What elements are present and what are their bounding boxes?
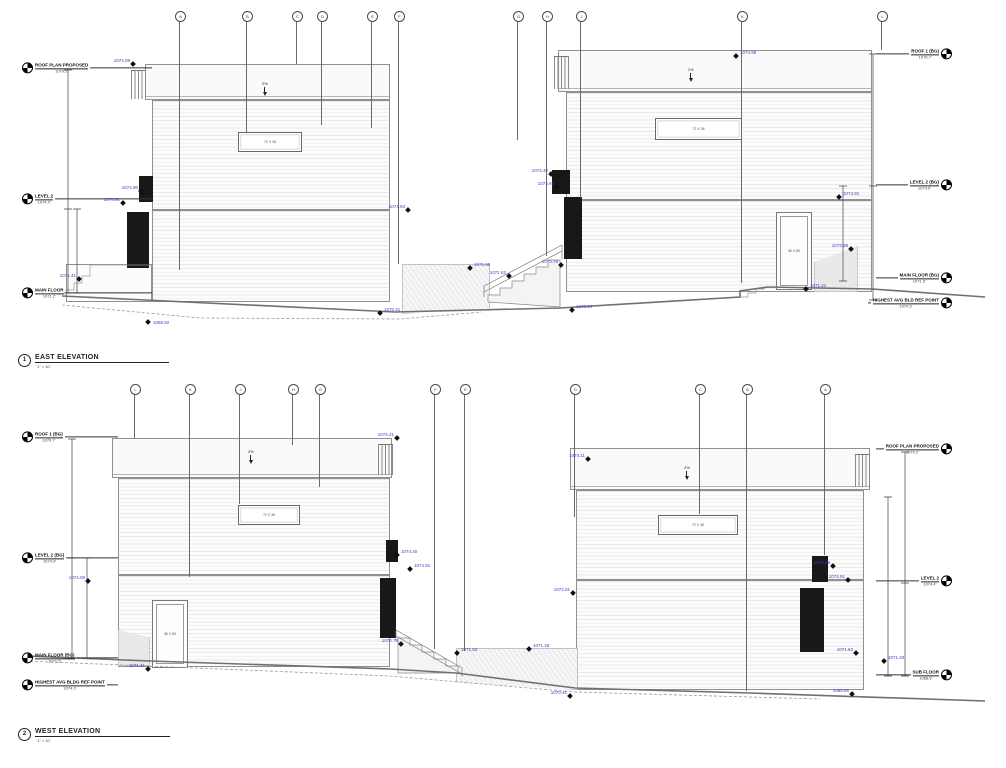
level-elevation: 1079.7' bbox=[42, 438, 55, 443]
spot-marker-icon bbox=[569, 307, 575, 313]
level-name: LEVEL 2 (BG) bbox=[35, 552, 64, 559]
spot-elevation-value: 1074.93 bbox=[389, 204, 405, 209]
spot-elevation-value: 1074.01 bbox=[554, 587, 570, 592]
west-right-roof-railing bbox=[855, 454, 870, 487]
grid-bubble-letter: D bbox=[317, 11, 328, 22]
grid-bubble-letter: A bbox=[820, 384, 831, 395]
east-left-roof-railing bbox=[131, 70, 146, 99]
level-marker: LEVEL 21074.4' bbox=[876, 575, 952, 586]
spot-marker-icon bbox=[394, 435, 400, 441]
view-number-bubble: 1 bbox=[18, 354, 31, 367]
grid-bubble-letter: B bbox=[242, 11, 253, 22]
level-elevation: 1071.5' bbox=[48, 659, 61, 664]
level-elevation: 1074.9' bbox=[918, 186, 931, 191]
level-marker: ROOF 1 (BG)1079.7' bbox=[22, 431, 118, 442]
spot-marker-icon bbox=[407, 566, 413, 572]
spot-marker-icon bbox=[881, 658, 887, 664]
grid-bubble-letter: G bbox=[315, 384, 326, 395]
spot-elevation-value: 1070.14 bbox=[576, 304, 592, 309]
east-left-dark-window-upper bbox=[139, 176, 153, 202]
spot-marker-icon bbox=[558, 262, 564, 268]
level-elevation: 1071.2' bbox=[43, 294, 56, 299]
level-line bbox=[876, 277, 898, 278]
level-marker: HIGHEST AVG BLD REF POINT1074.3' bbox=[876, 297, 952, 308]
level-elevation: 1074.3' bbox=[63, 686, 76, 691]
spot-marker-icon bbox=[85, 578, 91, 584]
level-name: ROOF PLAN PROPOSED bbox=[35, 62, 88, 69]
grid-bubble-letter: H bbox=[288, 384, 299, 395]
level-marker: SUB FLOOR1068.9' bbox=[876, 669, 952, 680]
level-name: ROOF PLAN PROPOSED bbox=[886, 443, 939, 450]
level-name: ROOF 1 (BG) bbox=[35, 431, 63, 438]
grid-line bbox=[464, 393, 465, 651]
level-name: LEVEL 2 bbox=[921, 575, 939, 582]
level-datum-icon bbox=[22, 431, 33, 442]
view-title: WEST ELEVATION bbox=[35, 728, 170, 737]
level-marker: HIGHEST AVG BLDG REF POINT1074.3' bbox=[22, 679, 118, 690]
level-line bbox=[65, 436, 118, 437]
east-right-dark-window-upper bbox=[552, 170, 570, 194]
level-elevation: 1074.4' bbox=[923, 582, 936, 587]
west-entry-door: 36 X 80 bbox=[152, 600, 188, 668]
spot-elevation-value: 1074.91 bbox=[414, 563, 430, 568]
fascia-line bbox=[559, 88, 871, 89]
east-right-building-parapet bbox=[558, 50, 872, 92]
east-right-roof-railing bbox=[554, 56, 569, 89]
grid-bubble-letter: B bbox=[742, 384, 753, 395]
grid-line bbox=[398, 20, 399, 264]
level-marker: LEVEL 21074.4' bbox=[22, 193, 152, 204]
level-marker: LEVEL 2 (BG)1074.9' bbox=[876, 179, 952, 190]
level-name: HIGHEST AVG BLDG REF POINT bbox=[35, 679, 105, 686]
level-elevation: 1068.9' bbox=[919, 676, 932, 681]
elevation-drawing-sheet: 36 X 80 36 X 80 bbox=[0, 0, 1006, 768]
east-elevation-title: 1 EAST ELEVATION 1" = 10' bbox=[18, 354, 169, 369]
west-right-building-parapet bbox=[570, 448, 870, 490]
level-line bbox=[876, 53, 909, 54]
level-elevation: 1079.7' bbox=[919, 55, 932, 60]
level-elevation: 1079.2' bbox=[906, 450, 919, 455]
level-marker: LEVEL 2 (BG)1074.9' bbox=[22, 552, 118, 563]
level-name: HIGHEST AVG BLD REF POINT bbox=[873, 297, 939, 304]
level-datum-icon bbox=[941, 48, 952, 59]
grid-bubble-letter: C bbox=[695, 384, 706, 395]
level-line bbox=[876, 674, 911, 675]
level-datum-icon bbox=[941, 179, 952, 190]
view-title: EAST ELEVATION bbox=[35, 354, 169, 363]
grid-bubble-letter: H bbox=[542, 11, 553, 22]
level-name: LEVEL 2 (BG) bbox=[910, 179, 939, 186]
fascia-line bbox=[571, 486, 869, 487]
east-left-building-parapet bbox=[145, 64, 390, 100]
west-elevation-title: 2 WEST ELEVATION 1" = 10' bbox=[18, 728, 170, 743]
grid-bubble-letter: J bbox=[235, 384, 246, 395]
spot-elevation-value: 1071.28 bbox=[533, 643, 549, 648]
west-left-building-parapet bbox=[112, 438, 392, 478]
grid-bubble-letter: D bbox=[570, 384, 581, 395]
spot-marker-icon bbox=[506, 273, 512, 279]
level-name: MAIN FLOOR (BG) bbox=[35, 652, 75, 659]
level-marker: MAIN FLOOR (BG)1071.5' bbox=[876, 272, 952, 283]
spot-elevation-value: 1074.41 bbox=[378, 432, 394, 437]
grid-bubble-letter: L bbox=[130, 384, 141, 395]
spot-marker-icon bbox=[377, 310, 383, 316]
level-line bbox=[66, 557, 118, 558]
grid-bubble-letter: G bbox=[513, 11, 524, 22]
east-left-building-lower-floor bbox=[152, 210, 390, 302]
west-left-roof-railing bbox=[378, 444, 393, 475]
level-datum-icon bbox=[22, 287, 33, 298]
east-retaining-wall bbox=[402, 264, 490, 314]
level-datum-icon bbox=[941, 443, 952, 454]
level-elevation: 1071.5' bbox=[913, 279, 926, 284]
spot-elevation-value: 1074.40 bbox=[532, 168, 548, 173]
spot-marker-icon bbox=[398, 641, 404, 647]
grid-line bbox=[517, 20, 518, 140]
spot-marker-icon bbox=[570, 590, 576, 596]
view-scale: 1" = 10' bbox=[37, 738, 170, 743]
level-name: ROOF 1 (BG) bbox=[911, 48, 939, 55]
spot-elevation-value: 1074.08 bbox=[114, 58, 130, 63]
spot-marker-icon bbox=[405, 207, 411, 213]
level-datum-icon bbox=[941, 297, 952, 308]
level-datum-icon bbox=[941, 575, 952, 586]
grid-bubble-letter: F bbox=[430, 384, 441, 395]
spot-elevation-value: 1070.41 bbox=[384, 307, 400, 312]
level-datum-icon bbox=[941, 272, 952, 283]
door-size-label: 36 X 80 bbox=[164, 632, 176, 636]
spot-elevation-value: 1074.90 bbox=[122, 185, 138, 190]
west-left-dark-window-upper bbox=[386, 540, 398, 562]
level-line bbox=[77, 657, 119, 658]
spot-elevation-value: 1071.63 bbox=[490, 270, 506, 275]
west-right-dark-window-lower bbox=[800, 588, 824, 652]
view-scale: 1" = 10' bbox=[37, 364, 169, 369]
level-line bbox=[107, 684, 118, 685]
grid-line bbox=[296, 20, 297, 64]
level-line bbox=[55, 198, 152, 199]
spot-marker-icon bbox=[120, 200, 126, 206]
west-left-dark-window-lower bbox=[380, 578, 396, 638]
spot-marker-icon bbox=[145, 319, 151, 325]
level-datum-icon bbox=[941, 669, 952, 680]
east-right-dark-window-lower bbox=[564, 197, 582, 259]
level-marker: ROOF PLAN PROPOSED1079.2' bbox=[876, 443, 952, 454]
fascia-line bbox=[113, 474, 391, 475]
spot-elevation-value: 1073.79 bbox=[542, 259, 558, 264]
level-elevation: 1079.2' bbox=[55, 69, 68, 74]
level-datum-icon bbox=[22, 652, 33, 663]
level-elevation: 1074.4' bbox=[38, 200, 51, 205]
view-number-bubble: 2 bbox=[18, 728, 31, 741]
level-marker: MAIN FLOOR (BG)1071.5' bbox=[22, 652, 118, 663]
level-line bbox=[876, 448, 884, 449]
grid-bubble-letter: C bbox=[292, 11, 303, 22]
grid-line bbox=[434, 393, 435, 649]
grid-bubble-letter: J bbox=[576, 11, 587, 22]
level-name: SUB FLOOR bbox=[913, 669, 940, 676]
grid-bubble-letter: L bbox=[877, 11, 888, 22]
level-datum-icon bbox=[22, 193, 33, 204]
level-datum-icon bbox=[22, 679, 33, 690]
east-right-building-upper-floor bbox=[566, 92, 872, 200]
level-name: MAIN FLOOR (BG) bbox=[900, 272, 940, 279]
spot-marker-icon bbox=[849, 691, 855, 697]
level-name: LEVEL 2 bbox=[35, 193, 53, 200]
level-elevation: 1074.9' bbox=[43, 559, 56, 564]
level-name: MAIN FLOOR bbox=[35, 287, 64, 294]
level-marker: ROOF 1 (BG)1079.7' bbox=[876, 48, 952, 59]
level-line bbox=[876, 184, 908, 185]
spot-elevation-value: 1074.08 bbox=[69, 575, 85, 580]
grid-line bbox=[546, 20, 547, 256]
spot-elevation-value: 1070.41 bbox=[551, 690, 567, 695]
level-line bbox=[90, 67, 152, 68]
spot-marker-icon bbox=[567, 693, 573, 699]
spot-elevation-value: 1074.40 bbox=[401, 549, 417, 554]
east-entry-door: 36 X 80 bbox=[776, 212, 812, 290]
grid-bubble-letter: F bbox=[394, 11, 405, 22]
west-right-dark-window-upper bbox=[812, 556, 828, 582]
grid-bubble-letter: A bbox=[175, 11, 186, 22]
west-retaining-wall bbox=[456, 648, 578, 690]
east-left-basement-wall bbox=[66, 264, 152, 302]
spot-elevation-value: 1068.92 bbox=[153, 320, 169, 325]
grid-line bbox=[134, 393, 135, 439]
east-left-building-upper-floor bbox=[152, 100, 390, 210]
spot-marker-icon bbox=[145, 666, 151, 672]
fascia-line bbox=[146, 96, 389, 97]
door-size-label: 36 X 80 bbox=[788, 249, 800, 253]
grid-bubble-letter: K bbox=[737, 11, 748, 22]
grid-bubble-letter: E bbox=[367, 11, 378, 22]
stairs bbox=[398, 260, 560, 673]
spot-elevation-value: 1071.20 bbox=[888, 655, 904, 660]
grid-bubble-letter: E bbox=[460, 384, 471, 395]
level-line bbox=[876, 580, 919, 581]
east-left-dark-window-lower bbox=[127, 212, 149, 268]
grid-bubble-letter: K bbox=[185, 384, 196, 395]
spot-marker-icon bbox=[130, 61, 136, 67]
level-elevation: 1074.3' bbox=[899, 304, 912, 309]
spot-elevation-value: 1074.91 bbox=[104, 197, 120, 202]
level-datum-icon bbox=[22, 62, 33, 73]
level-line bbox=[868, 302, 871, 303]
west-left-building-upper-floor bbox=[118, 478, 390, 575]
grid-line bbox=[881, 20, 882, 50]
level-datum-icon bbox=[22, 552, 33, 563]
